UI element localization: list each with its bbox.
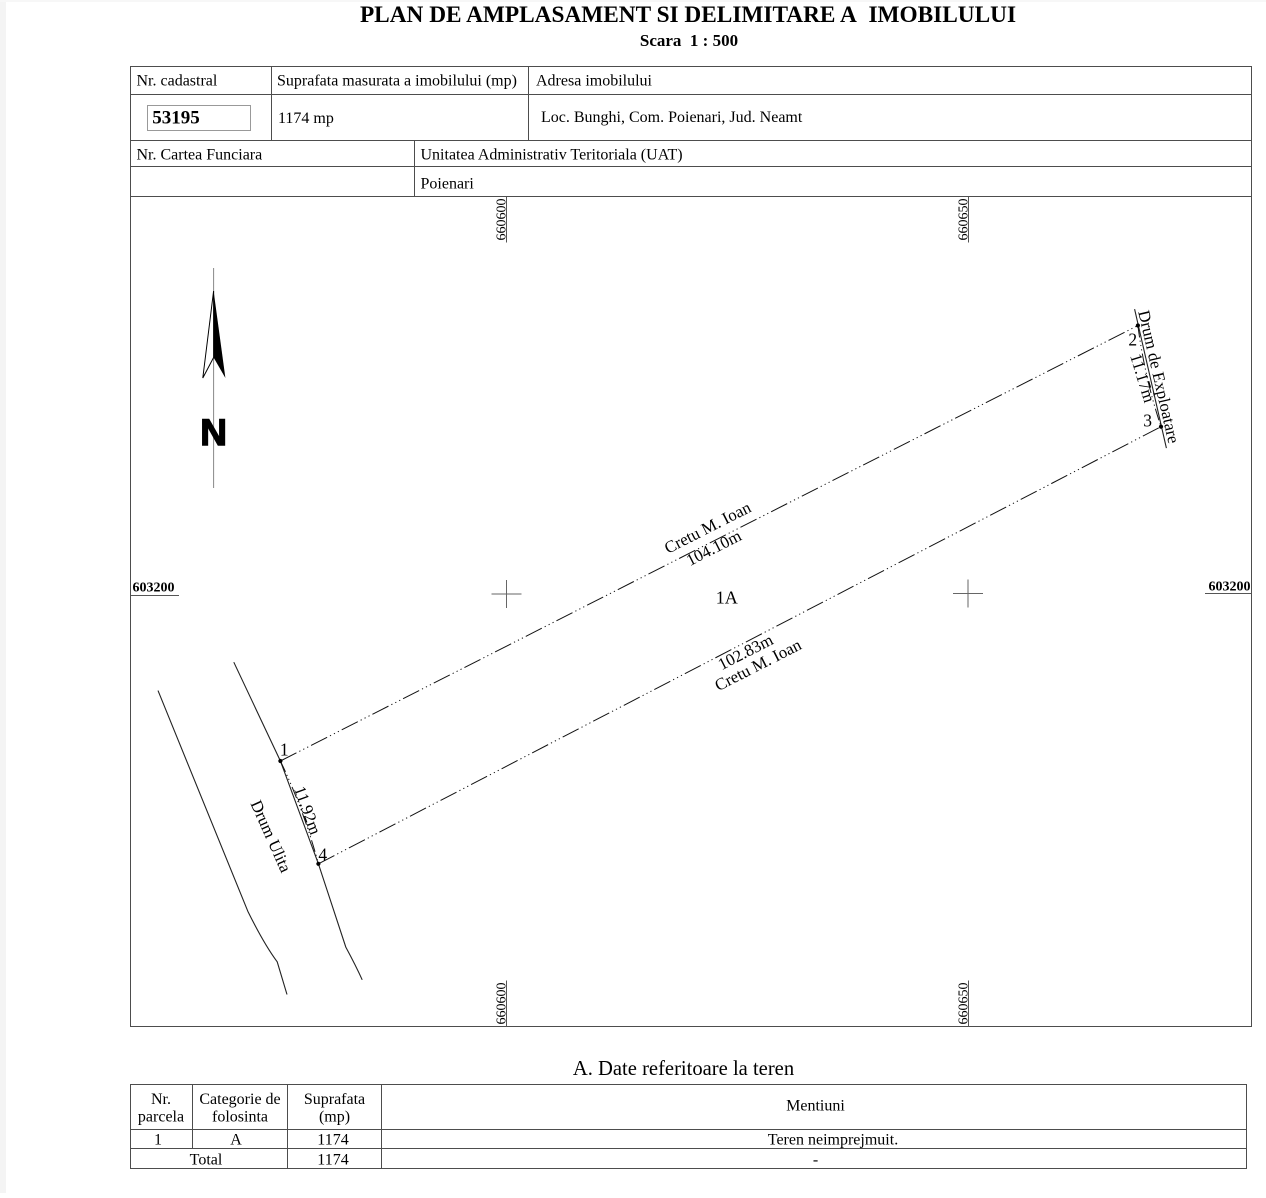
svg-text:660650: 660650 <box>957 199 972 241</box>
svg-text:4: 4 <box>318 845 327 865</box>
svg-text:Teren neimprejmuit.: Teren neimprejmuit. <box>768 1132 898 1149</box>
svg-text:Categorie de: Categorie de <box>199 1091 280 1108</box>
svg-text:1174 mp: 1174 mp <box>278 110 334 127</box>
svg-text:-: - <box>813 1152 818 1169</box>
svg-text:A: A <box>230 1132 242 1149</box>
svg-text:660650: 660650 <box>957 983 972 1025</box>
svg-text:Loc. Bunghi, Com. Poienari, Ju: Loc. Bunghi, Com. Poienari, Jud. Neamt <box>541 109 803 126</box>
svg-text:Adresa imobilului: Adresa imobilului <box>536 73 653 90</box>
svg-text:Nr. cadastral: Nr. cadastral <box>137 73 218 90</box>
svg-text:603200: 603200 <box>1209 580 1251 595</box>
svg-text:N: N <box>200 412 227 453</box>
svg-text:1: 1 <box>154 1132 162 1149</box>
svg-text:folosinta: folosinta <box>212 1109 268 1126</box>
svg-text:Suprafata: Suprafata <box>304 1091 365 1108</box>
svg-text:Scara 1 : 500: Scara 1 : 500 <box>640 31 738 50</box>
svg-text:3: 3 <box>1143 411 1152 431</box>
svg-text:Mentiuni: Mentiuni <box>786 1098 845 1115</box>
svg-text:1174: 1174 <box>317 1132 348 1149</box>
svg-text:660600: 660600 <box>495 199 510 241</box>
svg-text:660600: 660600 <box>495 983 510 1025</box>
svg-text:Suprafata masurata a imobilulu: Suprafata masurata a imobilului (mp) <box>277 73 517 90</box>
svg-text:PLAN DE AMPLASAMENT SI DELIMIT: PLAN DE AMPLASAMENT SI DELIMITARE A IMOB… <box>360 2 1016 28</box>
svg-text:(mp): (mp) <box>319 1109 350 1126</box>
svg-text:53195: 53195 <box>152 108 200 129</box>
svg-text:1A: 1A <box>716 588 738 608</box>
svg-text:2: 2 <box>1128 330 1137 350</box>
svg-text:A. Date referitoare la teren: A. Date referitoare la teren <box>573 1058 794 1080</box>
svg-text:1: 1 <box>280 740 289 760</box>
svg-text:Total: Total <box>190 1152 223 1169</box>
svg-text:Poienari: Poienari <box>421 176 475 193</box>
svg-text:Nr. Cartea Funciara: Nr. Cartea Funciara <box>137 147 263 164</box>
svg-text:1174: 1174 <box>317 1152 348 1169</box>
svg-text:Nr.: Nr. <box>151 1091 171 1108</box>
svg-text:603200: 603200 <box>133 581 175 596</box>
svg-text:Unitatea Administrativ Teritor: Unitatea Administrativ Teritoriala (UAT) <box>421 147 683 164</box>
svg-text:parcela: parcela <box>138 1109 184 1126</box>
